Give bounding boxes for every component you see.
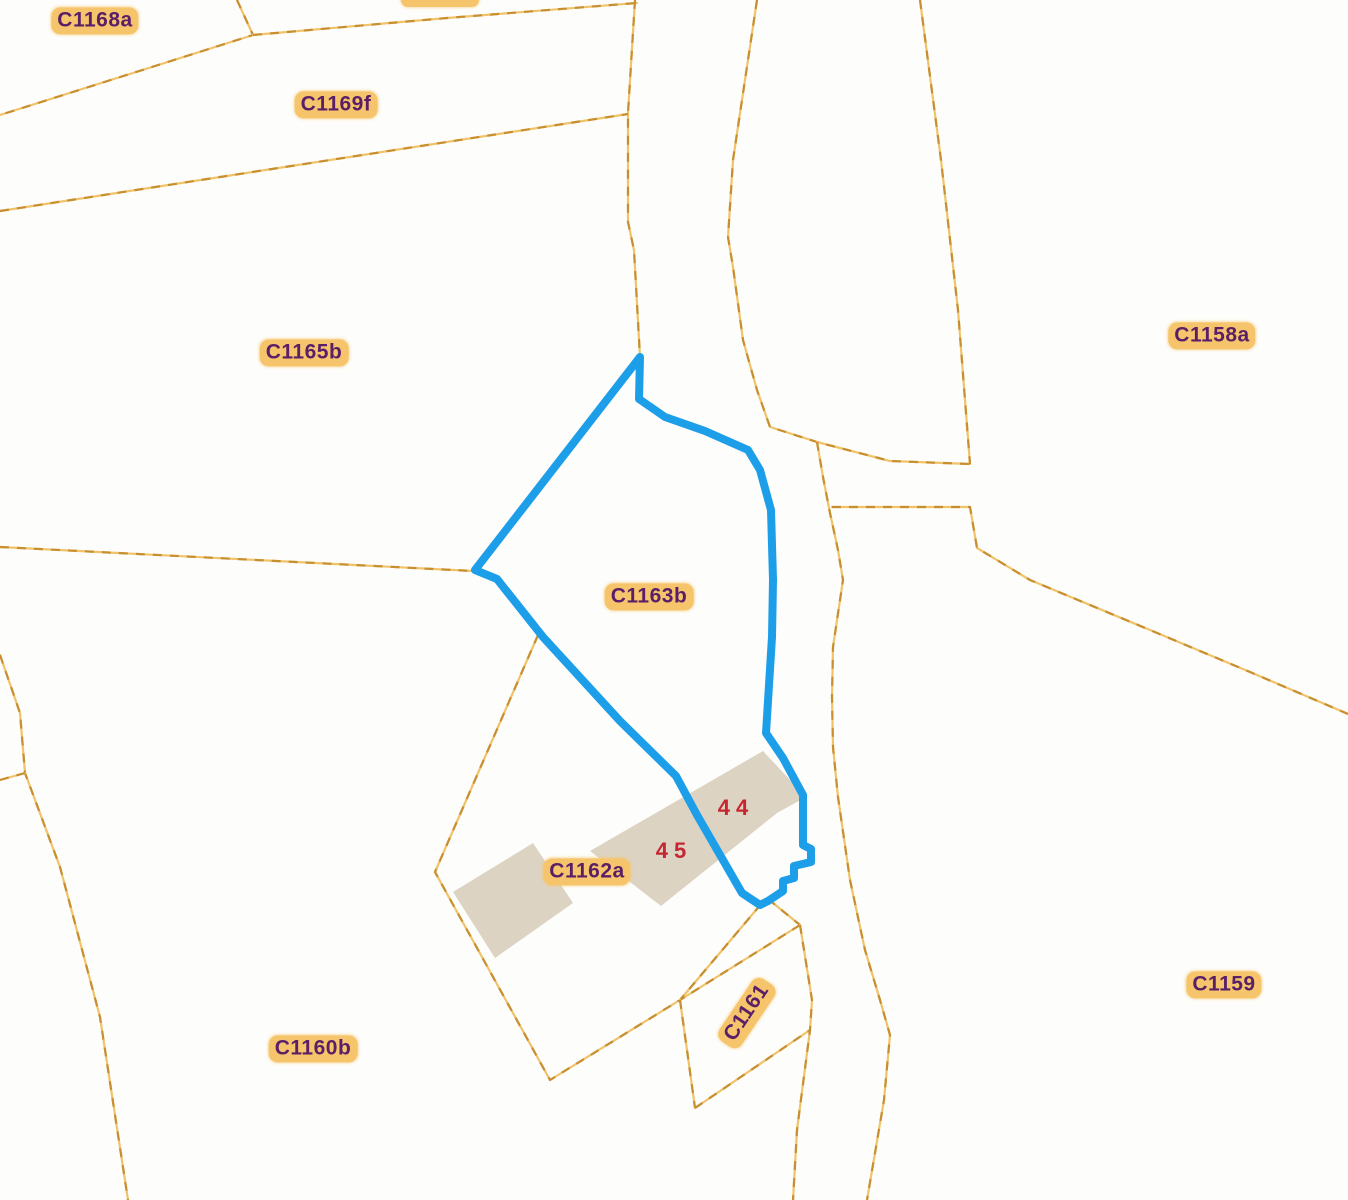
parcel-label-c1160b[interactable]: C1160b (269, 1035, 358, 1062)
road-south-edge-base (832, 507, 1348, 714)
road-east-upper (728, 0, 970, 464)
house-44-label: 44 (718, 795, 754, 821)
c1161-east-edge-base (793, 925, 812, 1200)
c1161-connector (768, 899, 800, 925)
boundary-sw-long (0, 655, 128, 1200)
c1161-northwest-edge (680, 925, 800, 1000)
parcel-label-c1159[interactable]: C1159 (1186, 971, 1261, 998)
boundary-c1169f-south-base (0, 114, 628, 211)
parcel-label-c1165b[interactable]: C1165b (260, 339, 349, 366)
road-west-lower (817, 442, 890, 1200)
road-west-upper (628, 0, 640, 357)
parcel-label-c1169f[interactable]: C1169f (295, 91, 378, 118)
house-45-label: 45 (656, 838, 692, 864)
boundary-c1158a-west-base (920, 0, 970, 464)
boundary-nw-top (253, 3, 637, 35)
buildings-layer (453, 751, 806, 958)
road-west-lower-base (817, 442, 890, 1200)
boundary-sw-long-base (0, 655, 128, 1200)
parcel-label-c1158a[interactable]: C1158a (1168, 322, 1255, 349)
boundary-c1158a-west (920, 0, 970, 464)
parcel-label-c1162a[interactable]: C1162a (543, 858, 630, 885)
road-west-upper-base (628, 0, 640, 357)
cadastral-map-viewport[interactable]: C1168aC1169fC1165bC1158aC1163bC1162aC116… (0, 0, 1348, 1200)
road-south-edge (832, 507, 1348, 714)
parcel-label-c1163b[interactable]: C1163b (605, 583, 694, 610)
parcel-label-c1168a[interactable]: C1168a (51, 7, 138, 34)
road-east-upper-base (728, 0, 970, 464)
parcel-label-partial-top[interactable] (401, 0, 479, 7)
